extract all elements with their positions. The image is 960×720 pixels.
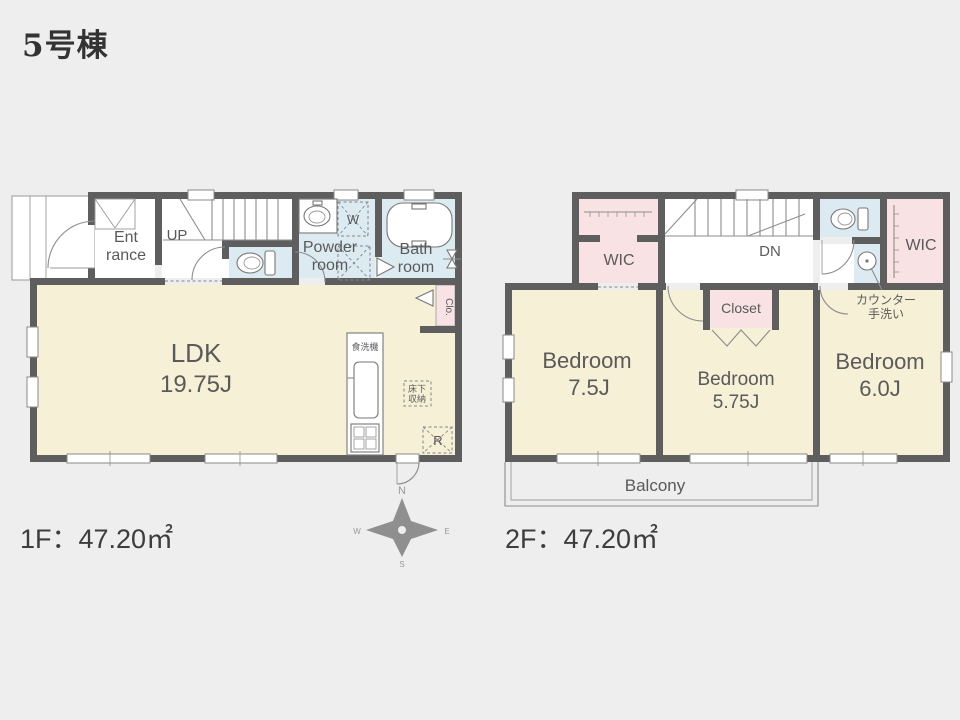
floor2-area-label: 2F：47.20㎡ — [505, 524, 658, 554]
powder-room-label-line2: room — [312, 257, 348, 274]
compass-west-label: W — [353, 527, 361, 536]
washer-label: W — [347, 212, 360, 227]
bedroom2-size-label: 5.75J — [713, 392, 759, 413]
window — [690, 454, 807, 463]
compass-rose: N W E S — [353, 485, 449, 569]
compass-south-label: S — [399, 560, 404, 569]
toilet-approach — [820, 244, 854, 283]
bath-room-label-line2: room — [398, 259, 434, 276]
powder-room-label-line1: Powder — [303, 239, 358, 256]
window — [503, 335, 514, 359]
window — [557, 454, 640, 463]
bath-room-label-line1: Bath — [400, 241, 433, 258]
window — [27, 377, 38, 407]
window — [941, 352, 952, 382]
compass-east-label: E — [444, 527, 449, 536]
floor1-plan: Ent rance UP Powder room Bath room W LDK… — [12, 190, 462, 554]
floorplan-drawing: Ent rance UP Powder room Bath room W LDK… — [0, 0, 960, 720]
toilet-icon — [831, 208, 868, 230]
room-stair-hall-2f — [665, 199, 813, 283]
ldk-size-label: 19.75J — [160, 371, 232, 398]
entrance-label-line1: Ent — [114, 229, 139, 246]
room-ldk — [37, 285, 455, 455]
wic-right-label: WIC — [905, 237, 936, 254]
bedroom2-label: Bedroom — [697, 369, 774, 390]
wic-left-label: WIC — [603, 252, 634, 269]
porch — [12, 196, 95, 280]
stairs-up-label: UP — [167, 227, 188, 244]
balcony-label: Balcony — [625, 476, 686, 495]
floor2-plan: WIC DN WIC カウンター 手洗い Closet Bedroom 7.5J… — [503, 190, 952, 554]
window — [830, 454, 897, 463]
floor1-area-label: 1F：47.20㎡ — [20, 524, 173, 554]
closet-2f-label: Closet — [721, 300, 761, 316]
window — [503, 378, 514, 402]
stairs-down-label: DN — [759, 243, 781, 260]
bedroom1-size-label: 7.5J — [568, 375, 610, 400]
floorplan-page: 5号棟 — [0, 0, 960, 720]
compass-center — [397, 525, 407, 535]
bedroom3-size-label: 6.0J — [859, 376, 901, 401]
window — [334, 190, 358, 200]
closet-1f-label: Clo. — [443, 298, 454, 316]
refrigerator-label: R — [433, 433, 442, 448]
counter-sink-label-line1: カウンター — [856, 293, 916, 307]
sink-icon — [299, 199, 337, 233]
stove-icon — [351, 424, 379, 452]
ldk-label: LDK — [171, 338, 222, 368]
toilet-icon — [237, 251, 275, 275]
bedroom1-label: Bedroom — [542, 348, 631, 373]
window — [67, 454, 150, 463]
underfloor-storage-label-line1: 床下 — [408, 383, 426, 394]
dishwasher-label: 食洗機 — [351, 341, 378, 352]
window — [736, 190, 768, 200]
window — [404, 190, 434, 200]
kitchen-back-door-arc — [397, 462, 419, 484]
underfloor-storage-label-line2: 収納 — [408, 393, 426, 404]
counter-sink-label-line2: 手洗い — [868, 307, 904, 321]
compass-north-label: N — [398, 485, 406, 497]
window — [205, 454, 277, 463]
window — [27, 327, 38, 357]
kitchen-sink-icon — [354, 362, 378, 418]
window — [188, 190, 214, 200]
bedroom3-label: Bedroom — [835, 349, 924, 374]
entrance-label-line2: rance — [106, 247, 146, 264]
